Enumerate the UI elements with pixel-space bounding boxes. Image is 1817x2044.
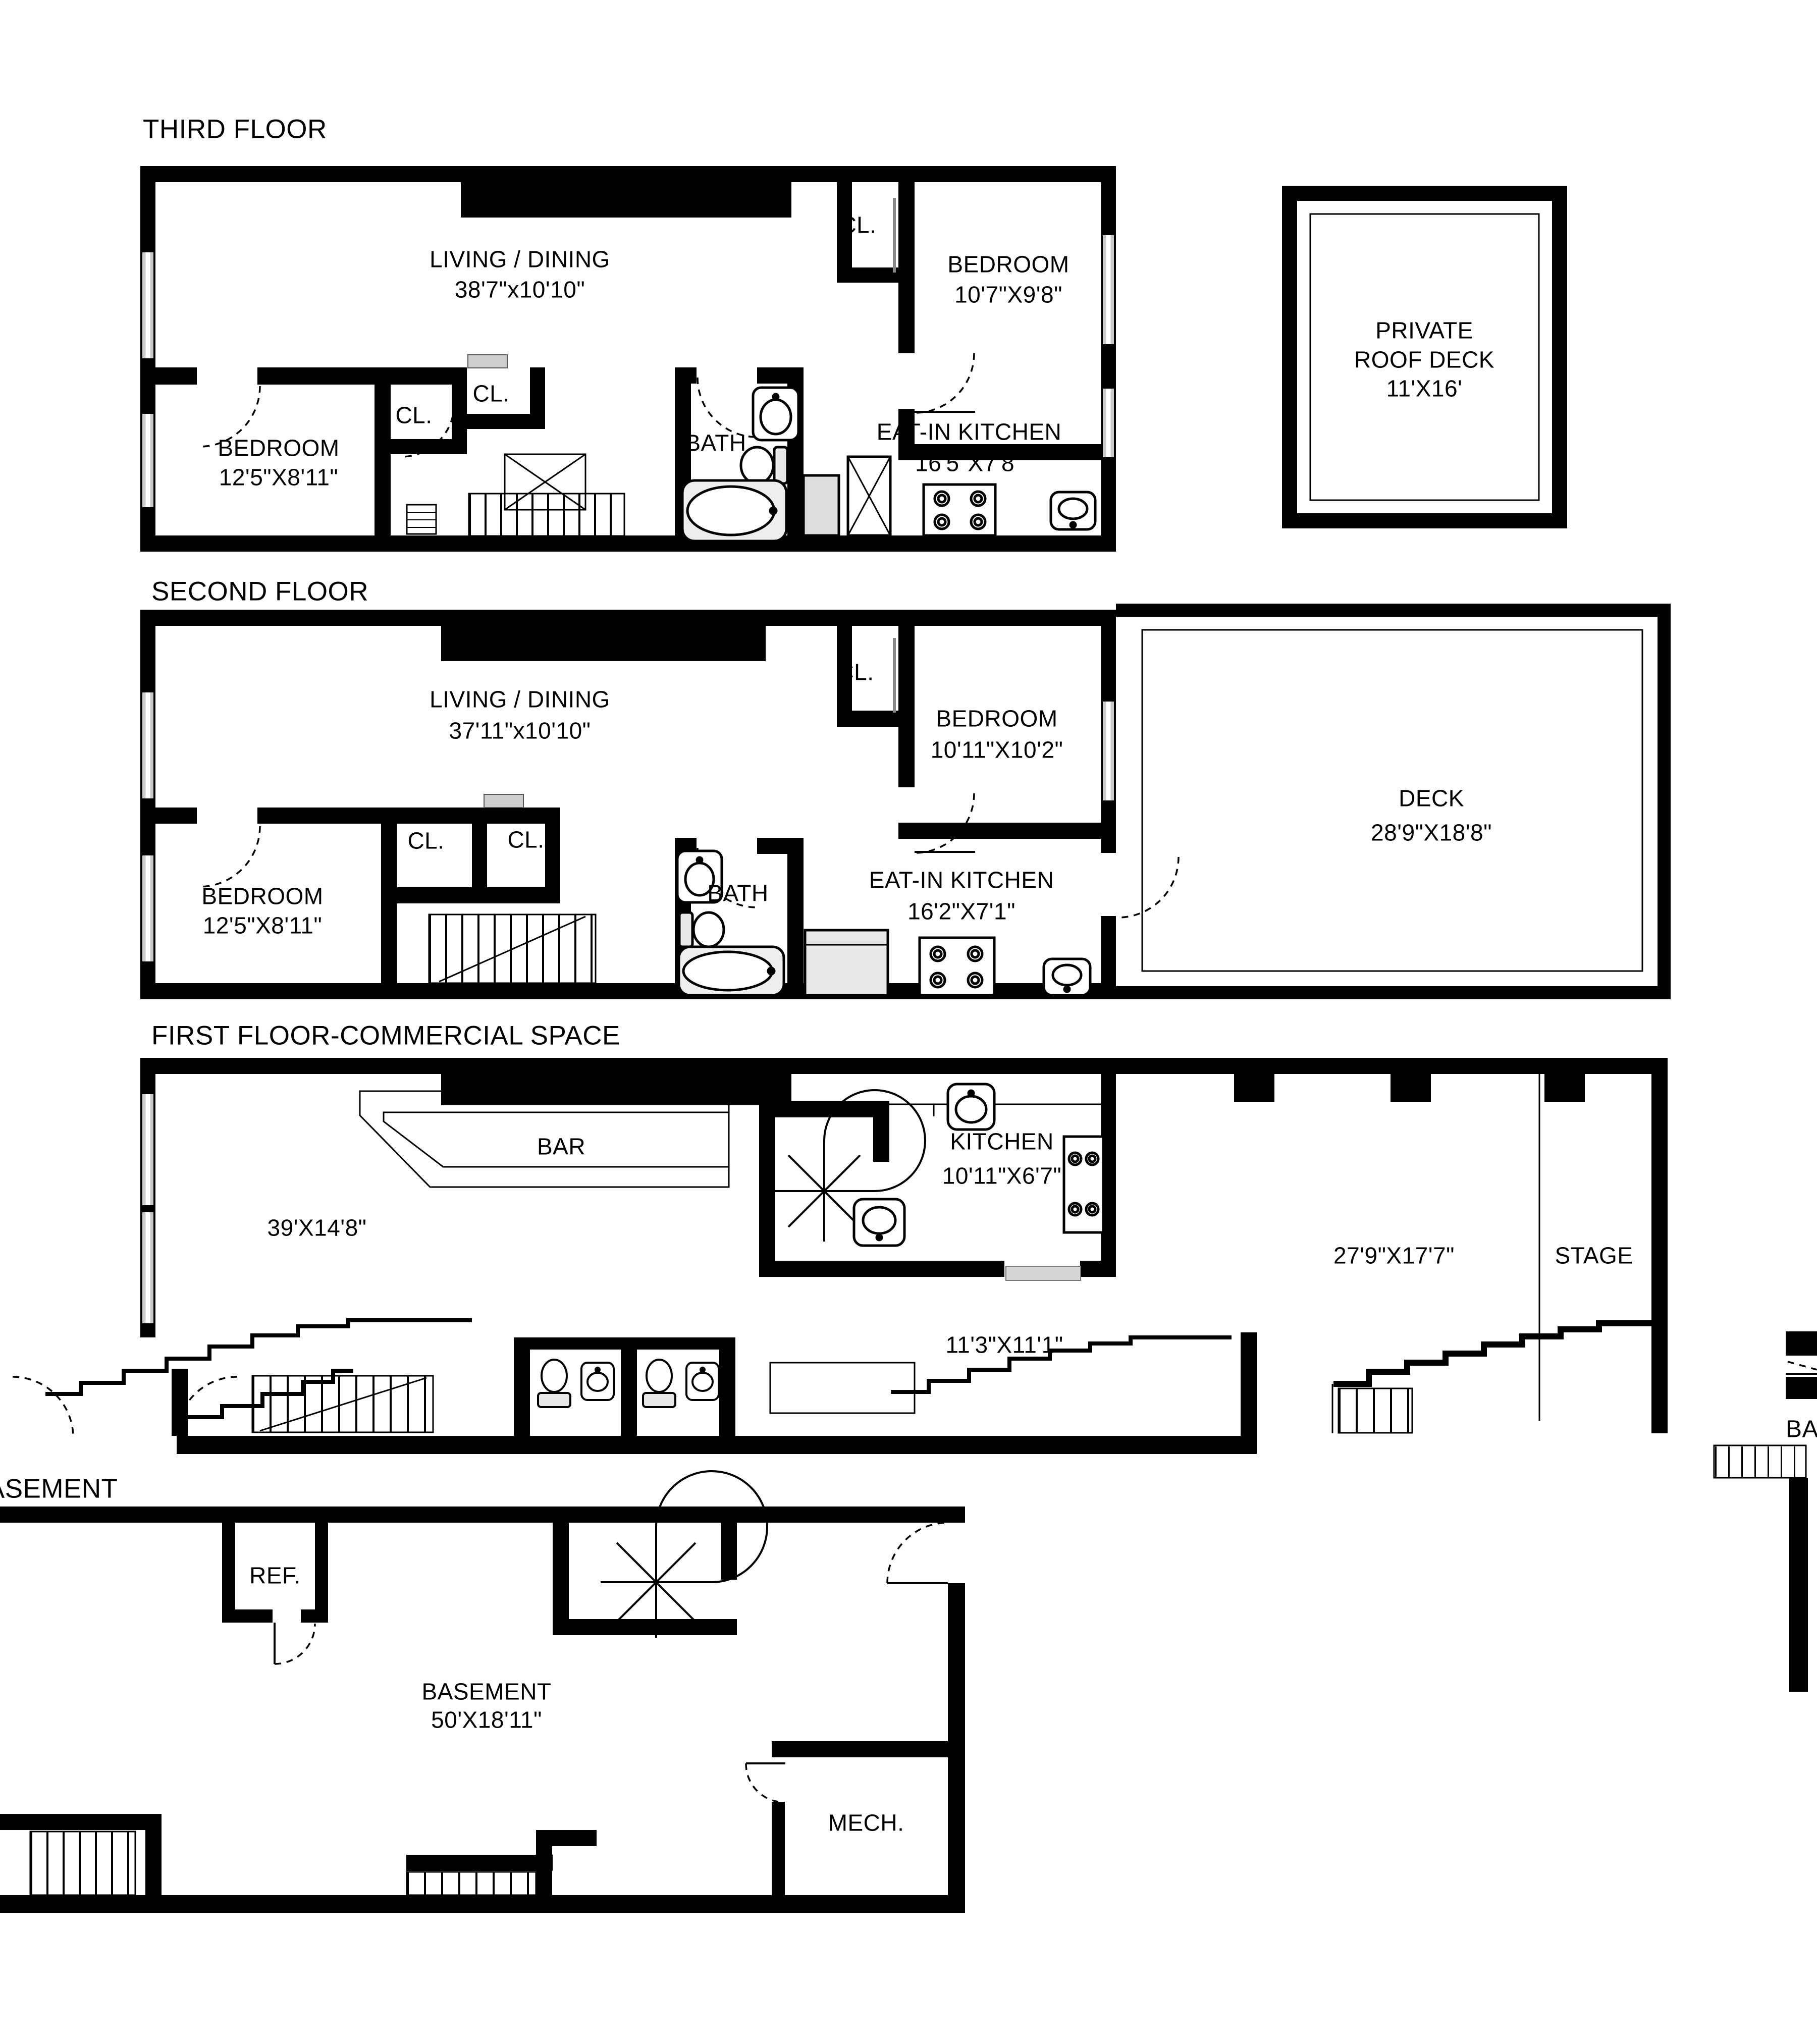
bedroom-dims: 10'7"X9'8" (954, 281, 1062, 308)
closet-shelf (484, 794, 524, 808)
chimney-wall (441, 626, 766, 661)
wall (898, 823, 1116, 839)
toilet-tank (774, 447, 787, 483)
wall (375, 385, 391, 535)
window (1103, 235, 1114, 344)
sink-faucet (773, 394, 778, 399)
sink-faucet (596, 1368, 600, 1372)
wall (381, 824, 397, 983)
sink-faucet (701, 1368, 705, 1372)
door-arc (887, 1523, 948, 1583)
adjacent-plan-wall (1789, 1478, 1808, 1692)
staircase (407, 454, 624, 536)
restroom-wall (514, 1337, 530, 1436)
sink (1051, 492, 1095, 529)
bedroom-label: BEDROOM (201, 882, 323, 910)
deck-rail (1142, 630, 1642, 971)
spiral-staircase (601, 1471, 767, 1638)
roof-deck-wall (1282, 513, 1567, 528)
sink (686, 1363, 719, 1400)
wall (675, 367, 697, 384)
floor-plan-page: { "page": {"background": "#ffffff", "ink… (0, 0, 1817, 2044)
wall (140, 535, 1116, 552)
kitchen-dims: 10'11"X6'7" (942, 1162, 1062, 1190)
door-arc (275, 1624, 315, 1664)
bedroom-label: BEDROOM (947, 250, 1069, 278)
staircase (252, 1376, 433, 1432)
wall (1101, 166, 1116, 552)
stair-enclosure-wall (721, 1523, 737, 1580)
wall (140, 983, 1116, 999)
door-arc (698, 378, 757, 437)
closet-label: CL. (837, 658, 874, 686)
restroom-wall (719, 1337, 735, 1436)
wall (787, 854, 804, 983)
chimney-wall (461, 182, 791, 218)
sink-basin (692, 1373, 713, 1391)
burner (935, 492, 985, 529)
deck-label: DECK (1399, 784, 1464, 812)
third-floor-title: THIRD FLOOR (143, 114, 327, 145)
storefront-window (142, 1094, 153, 1205)
deck-wall (1658, 604, 1671, 999)
ref-room-wall (315, 1523, 328, 1623)
sink-basin (956, 1096, 986, 1122)
wall (675, 838, 697, 854)
wall (257, 808, 560, 824)
sink-basin (1059, 499, 1087, 519)
wall (0, 1507, 965, 1523)
wall (0, 1814, 162, 1830)
kitchen-label: KITCHEN (950, 1127, 1053, 1155)
wall (172, 1369, 188, 1436)
wall (140, 610, 1116, 626)
stage-label: STAGE (1555, 1242, 1633, 1269)
basement-room-label: BASEMENT (421, 1678, 551, 1705)
front-room-dims: 39'X14'8" (268, 1214, 367, 1242)
stair-enclosure-wall (759, 1101, 775, 1277)
deck-wall (1116, 986, 1671, 999)
living-dining-dims: 38'7"x10'10" (455, 276, 585, 303)
deck-wall (1116, 604, 1671, 617)
wall (837, 267, 915, 283)
pilaster (1391, 1074, 1431, 1102)
door-arc (1118, 857, 1179, 918)
stove (1064, 1137, 1103, 1232)
closet-shelf (467, 354, 508, 368)
bath-label: BATH (685, 429, 746, 457)
burner (1069, 1153, 1098, 1215)
living-dining-dims: 37'11"x10'10" (449, 717, 591, 744)
bar-label: BAR (537, 1133, 585, 1160)
wall (757, 838, 804, 854)
ref-room-wall (222, 1609, 273, 1623)
cabinet (848, 457, 890, 535)
roof-deck-label-line2: ROOF DECK (1354, 346, 1494, 373)
roof-deck-label-line1: PRIVATE (1375, 316, 1473, 344)
sink-basin (587, 1373, 608, 1391)
door-arc (199, 826, 260, 887)
wall (1101, 1074, 1116, 1277)
open-room-outline (770, 1363, 915, 1413)
mech-room-wall (772, 1802, 785, 1895)
wall (467, 414, 545, 429)
mech-room-label: MECH. (828, 1809, 904, 1837)
first-floor-title: FIRST FLOOR-COMMERCIAL SPACE (151, 1020, 620, 1051)
sink (948, 1084, 994, 1129)
wall (177, 1436, 1257, 1454)
roof-deck-wall (1552, 186, 1567, 528)
eat-in-kitchen-dims: 16'2"X7'1" (907, 897, 1016, 925)
stepped-edge (45, 1320, 1651, 1417)
ref-room-wall (301, 1609, 328, 1623)
living-dining-label: LIVING / DINING (430, 245, 610, 273)
window (142, 855, 153, 961)
wall (757, 367, 804, 384)
closet-label: CL. (507, 826, 544, 853)
wall (391, 439, 467, 454)
sink-basin (863, 1207, 895, 1233)
ref-room-label: REF. (249, 1562, 301, 1589)
sink-basin (761, 400, 791, 434)
door-arc (915, 353, 974, 413)
wall (0, 1895, 965, 1913)
door-arc (746, 1763, 778, 1802)
closet-label: CL. (472, 380, 509, 407)
eat-in-kitchen-label: EAT-IN KITCHEN (877, 418, 1062, 446)
window (142, 692, 153, 798)
roof-deck-wall (1282, 186, 1297, 528)
bedroom-dims: 12'5"X8'11" (219, 463, 339, 491)
kitchen-threshold (1005, 1266, 1081, 1281)
tub-faucet (770, 508, 776, 514)
sink (854, 1199, 904, 1246)
closet-label: CL. (395, 401, 432, 429)
stair-enclosure-wall (759, 1261, 889, 1277)
closet-label: CL. (839, 211, 876, 239)
toilet-bowl (693, 912, 724, 947)
adjacent-plan-wall (1786, 1377, 1817, 1399)
staircase (1332, 1384, 1412, 1433)
chimney-wall (441, 1074, 791, 1105)
wall (406, 1855, 553, 1871)
wall (381, 887, 560, 903)
wall (1241, 1332, 1257, 1436)
basement-title: BASEMENT (0, 1474, 118, 1504)
window (142, 414, 153, 507)
adjacent-plan-partial-label: BA (1786, 1416, 1817, 1443)
burner (931, 947, 982, 987)
counter-appliance (804, 475, 839, 535)
living-dining-label: LIVING / DINING (430, 685, 610, 713)
wall (140, 1058, 1668, 1074)
eat-in-kitchen-dims: 16'5"X7'8" (915, 449, 1023, 477)
toilet-tank (643, 1393, 675, 1407)
sink-faucet (1071, 522, 1076, 527)
stove (924, 485, 995, 535)
sink (581, 1363, 614, 1400)
wall (787, 384, 804, 535)
wall (145, 1814, 162, 1895)
staircase (30, 1832, 135, 1895)
restroom-wall (621, 1337, 637, 1436)
bedroom-dims: 12'5"X8'11" (203, 911, 323, 939)
stair-enclosure-wall (553, 1523, 569, 1635)
window (1103, 702, 1114, 800)
pilaster (1234, 1074, 1274, 1102)
ref-room-wall (222, 1523, 235, 1623)
storefront-window (142, 1212, 153, 1323)
wall (948, 1583, 965, 1913)
lower-room-dims: 11'3"X11'1" (945, 1331, 1063, 1359)
stair-enclosure-wall (553, 1619, 737, 1635)
second-floor-title: SECOND FLOOR (151, 576, 368, 607)
sink-faucet (969, 1091, 974, 1096)
staircase (407, 1872, 536, 1895)
cabinet-x (848, 457, 890, 535)
wall (140, 166, 1116, 182)
bath-label: BATH (707, 879, 768, 907)
eat-in-kitchen-label: EAT-IN KITCHEN (869, 866, 1054, 894)
wall (140, 808, 197, 824)
restroom-wall (514, 1337, 735, 1350)
bedroom-label: BEDROOM (218, 434, 339, 462)
pilaster (1544, 1074, 1585, 1102)
basement-room-dims: 50'X18'11" (431, 1706, 542, 1734)
toilet-bowl (542, 1360, 567, 1392)
tub-faucet (768, 968, 774, 974)
wall (837, 711, 915, 727)
staircase (429, 915, 596, 983)
wall (948, 1507, 965, 1523)
bedroom-label: BEDROOM (936, 705, 1057, 732)
door-arc (13, 1377, 73, 1437)
adjacent-plan-wall (1786, 1331, 1817, 1356)
bathtub (682, 480, 786, 541)
stair-enclosure-wall (873, 1101, 889, 1162)
stair-enclosure-wall (759, 1101, 889, 1117)
wall (257, 367, 461, 385)
sink-faucet (697, 857, 702, 863)
closet-label: CL. (407, 827, 444, 854)
mech-room-wall (772, 1741, 948, 1757)
deck-dims: 28'9"X18'8" (1371, 819, 1492, 846)
bathtub-basin (687, 487, 774, 535)
window (142, 252, 153, 358)
toilet-tank (538, 1393, 570, 1407)
wall (898, 727, 915, 787)
window (1103, 389, 1114, 457)
wall (536, 1830, 597, 1846)
sink-basin (1053, 965, 1081, 985)
back-room-dims: 27'9"X17'7" (1333, 1242, 1455, 1269)
roof-deck-dims: 11'X16' (1386, 374, 1463, 402)
bedroom-dims: 10'11"X10'2" (931, 736, 1063, 764)
sink-faucet (877, 1235, 882, 1240)
wall (140, 367, 197, 385)
toilet-bowl (647, 1360, 672, 1392)
wall (1651, 1058, 1668, 1433)
roof-deck-wall (1282, 186, 1567, 201)
door-arc (1788, 1362, 1817, 1370)
wall (675, 838, 691, 983)
wall (889, 1261, 1004, 1277)
